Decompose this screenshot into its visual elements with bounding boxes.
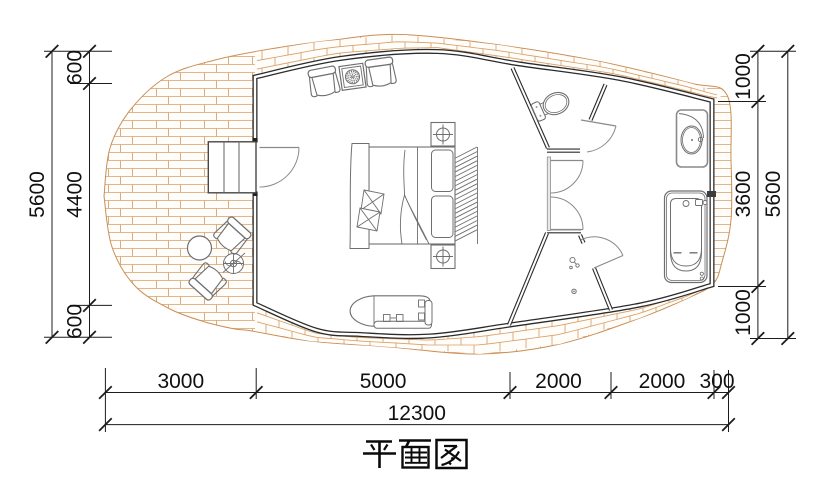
svg-text:5000: 5000: [360, 370, 407, 393]
svg-text:2000: 2000: [639, 370, 686, 393]
svg-text:600: 600: [64, 304, 87, 339]
svg-text:5600: 5600: [762, 171, 785, 218]
svg-text:4400: 4400: [64, 171, 87, 218]
svg-text:300: 300: [699, 370, 734, 393]
svg-text:12300: 12300: [388, 402, 446, 425]
svg-text:1000: 1000: [732, 289, 755, 336]
svg-text:3000: 3000: [157, 370, 204, 393]
svg-text:3600: 3600: [732, 171, 755, 218]
svg-text:1000: 1000: [732, 53, 755, 100]
svg-text:600: 600: [64, 50, 87, 85]
svg-text:2000: 2000: [535, 370, 582, 393]
svg-text:5600: 5600: [26, 171, 49, 218]
